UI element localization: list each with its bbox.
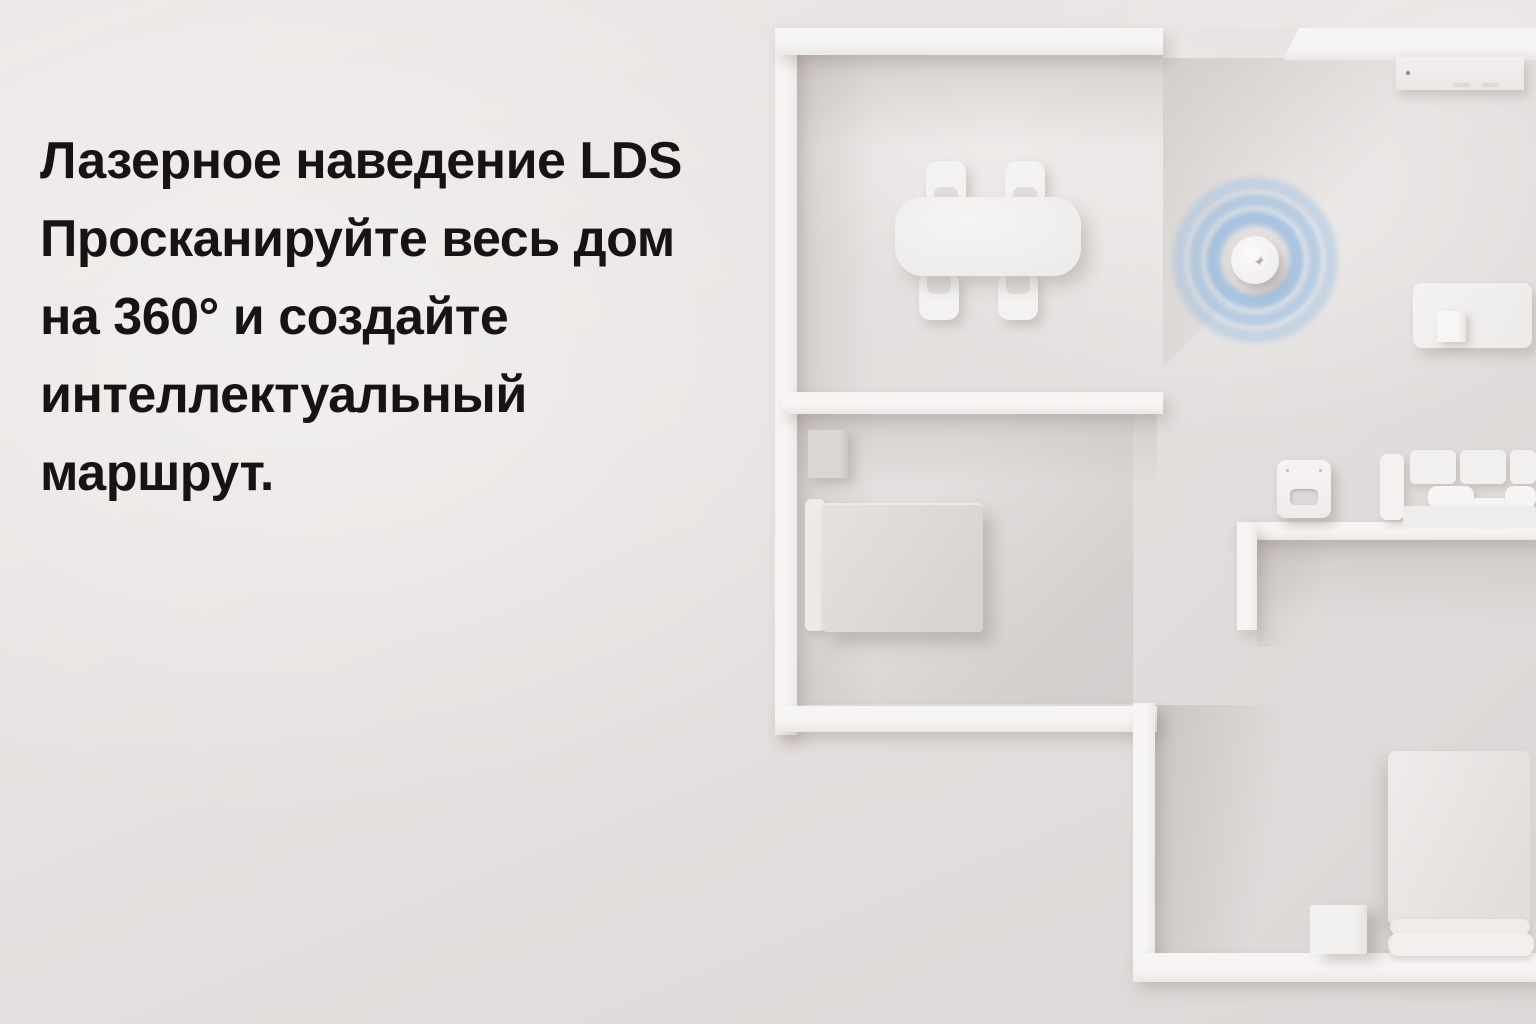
sofa-backrest — [1410, 450, 1456, 484]
dining-chair — [919, 272, 959, 320]
wall-bottom-right — [1133, 953, 1536, 982]
bed-mattress — [822, 503, 983, 632]
wall-middle — [781, 392, 1163, 414]
dining-chair — [998, 272, 1038, 320]
sofa-backrest — [1460, 450, 1506, 484]
headline-line-3: на 360° и создайте — [40, 278, 682, 356]
wall-living-stub — [1237, 522, 1257, 630]
dock-slot — [1290, 489, 1318, 505]
dining-table — [895, 197, 1081, 276]
tv-notch — [1454, 83, 1470, 87]
sofa-backrest — [1510, 450, 1536, 484]
headline-line-2: Просканируйте весь дом — [40, 200, 682, 278]
wall-top-left — [775, 28, 1163, 55]
tv-console — [1396, 57, 1524, 90]
sofa — [1380, 450, 1536, 530]
headline-line-4: интеллектуальный — [40, 356, 682, 434]
sofa-cushion — [1428, 486, 1474, 508]
table-object — [1437, 311, 1466, 342]
wall-left — [775, 28, 797, 735]
nightstand — [808, 430, 848, 478]
sofa-seat-base — [1403, 506, 1536, 528]
wall-top-right — [1283, 28, 1536, 60]
dock-screw — [1319, 469, 1322, 472]
headline-line-5: маршрут. — [40, 434, 682, 512]
headline-line-1: Лазерное наведение LDS — [40, 122, 682, 200]
wall-vertical-middle — [1133, 703, 1155, 965]
sofa-cushion — [1505, 486, 1536, 508]
robot-vacuum — [1231, 236, 1279, 284]
wall-bottom-left — [775, 706, 1157, 732]
headline: Лазерное наведение LDS Просканируйте вес… — [40, 122, 682, 512]
side-table — [1413, 283, 1532, 348]
tv-power-led — [1406, 71, 1410, 75]
double-bed-duvet — [1388, 751, 1530, 923]
tv-notch — [1482, 83, 1498, 87]
charging-dock — [1277, 460, 1331, 518]
sofa-armrest — [1380, 454, 1404, 520]
storage-cube — [1310, 905, 1367, 954]
robot-logo-icon — [1252, 253, 1267, 268]
product-banner: Лазерное наведение LDS Просканируйте вес… — [0, 0, 1536, 1024]
dock-screw — [1286, 469, 1289, 472]
blanket-fold — [1388, 933, 1534, 956]
